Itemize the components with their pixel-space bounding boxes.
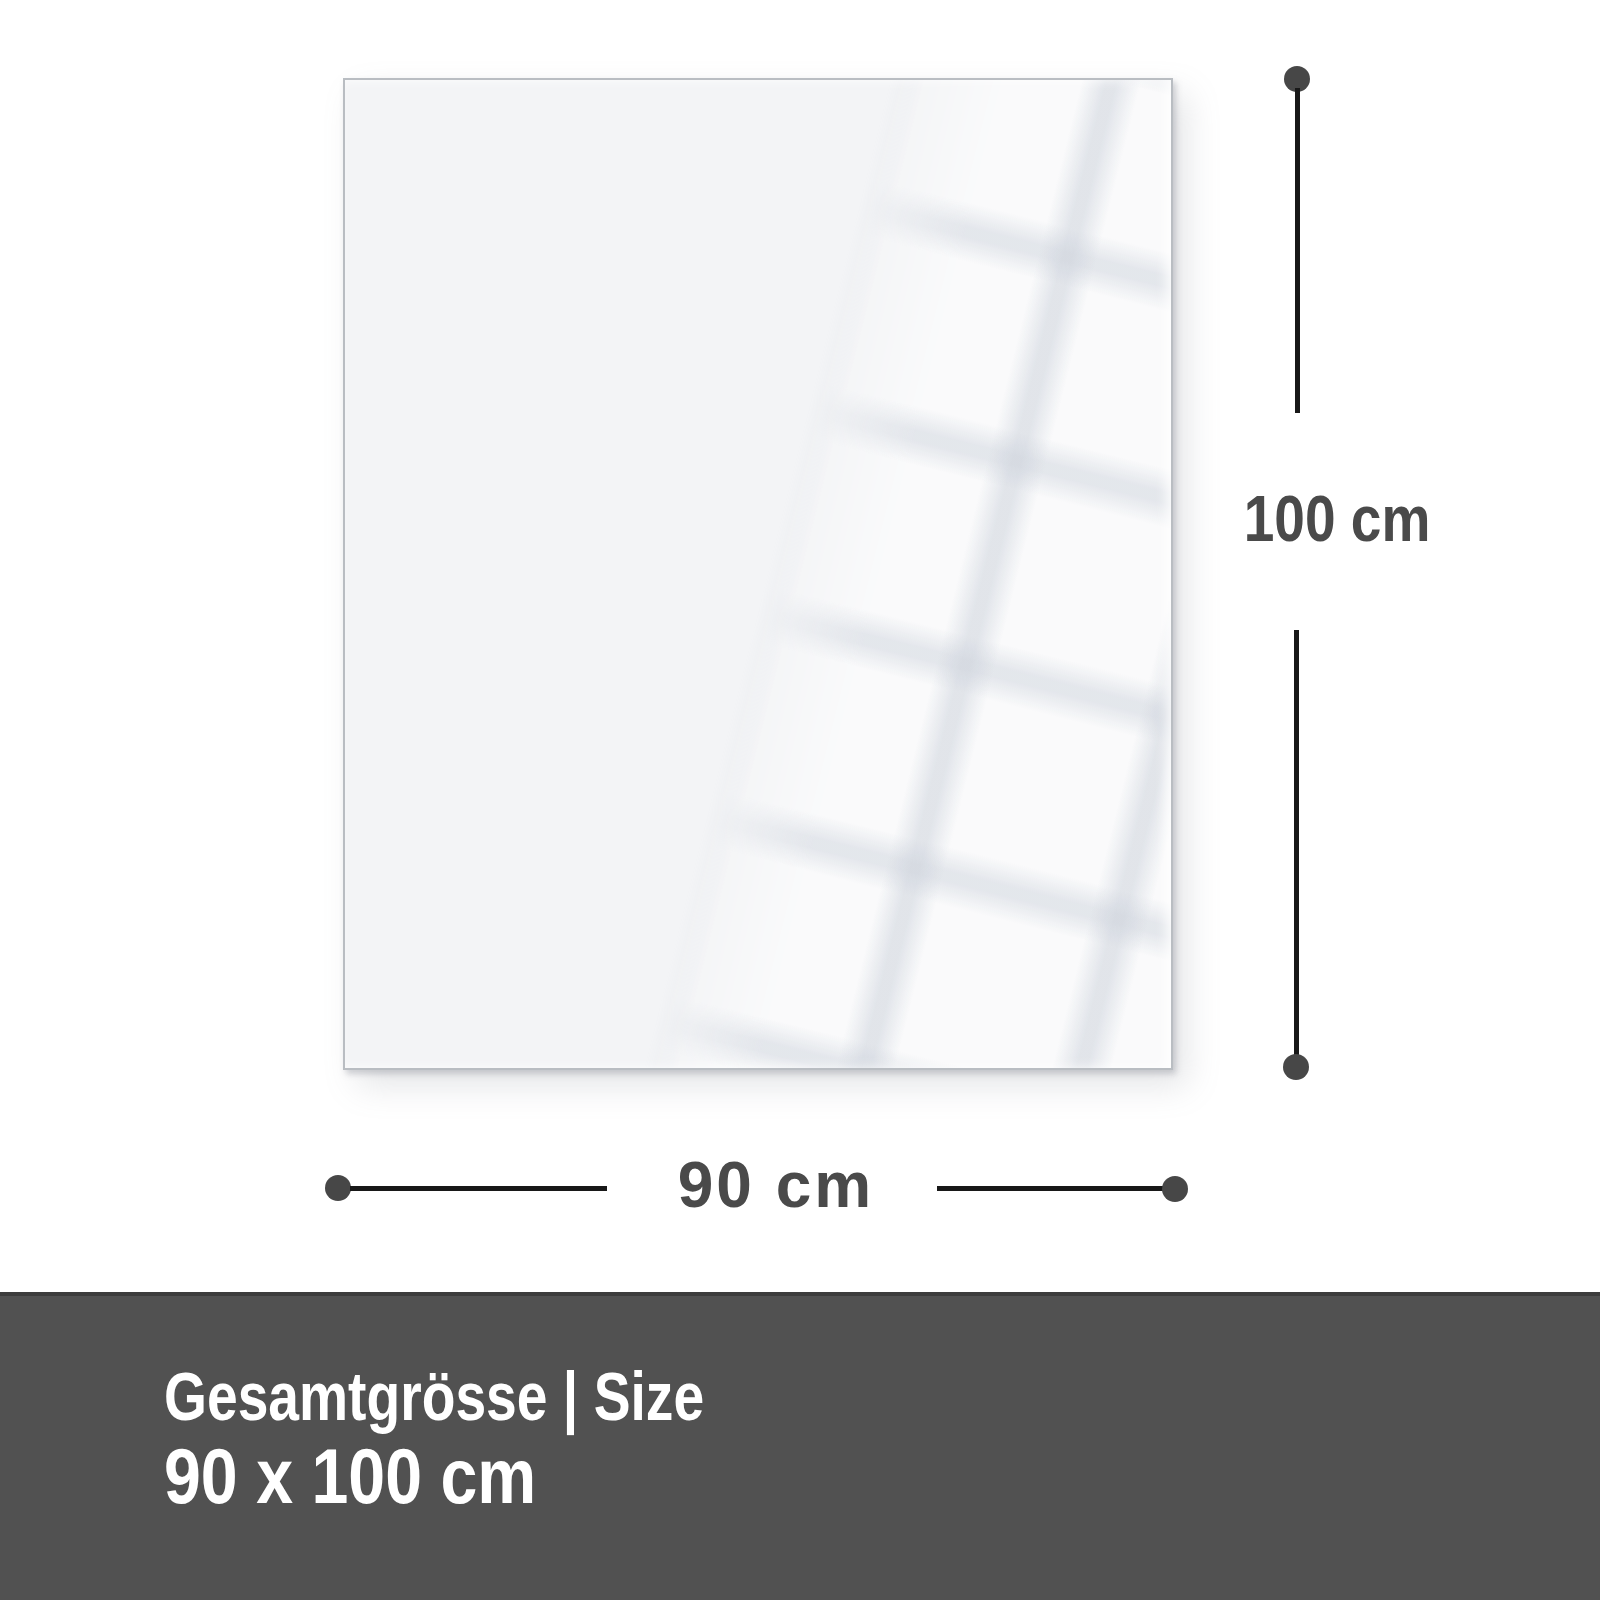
height-dimension-bottom-dot [1283,1054,1309,1080]
product-size-diagram: 100 cm 90 cm Gesamtgrösse | Size 90 x 10… [0,0,1600,1600]
height-dimension-line-lower [1294,630,1299,1056]
panel-edge-sheen [345,80,1171,1068]
width-dimension-label: 90 cm [678,1153,874,1217]
height-dimension-line-upper [1295,88,1300,413]
footer-size-value: 90 x 100 cm [164,1437,536,1515]
glass-panel [343,78,1173,1070]
footer-title: Gesamtgrösse | Size [164,1362,704,1431]
width-dimension-line-left [350,1186,607,1191]
width-dimension-right-dot [1162,1176,1188,1202]
footer-bar: Gesamtgrösse | Size 90 x 100 cm [0,1292,1600,1600]
width-dimension-line-right [937,1186,1163,1191]
height-dimension-label: 100 cm [1244,487,1431,551]
width-dimension-left-dot [325,1175,351,1201]
